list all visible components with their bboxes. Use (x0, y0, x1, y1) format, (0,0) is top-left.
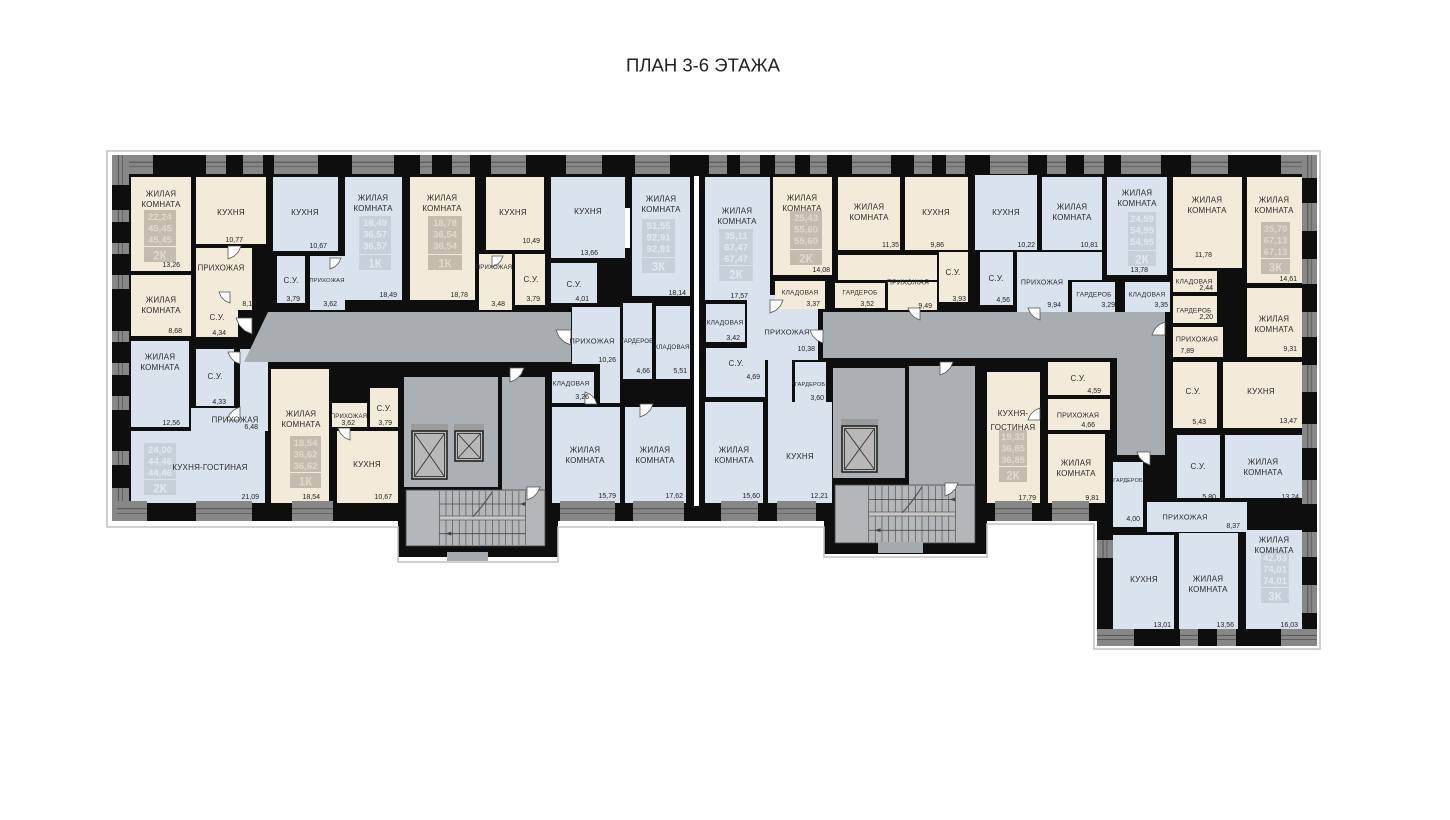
svg-text:13,01: 13,01 (1153, 622, 1171, 629)
svg-text:КОМНАТА: КОМНАТА (641, 205, 681, 214)
svg-text:67,13: 67,13 (1264, 235, 1288, 246)
svg-text:1К: 1К (438, 259, 452, 271)
svg-text:36,57: 36,57 (363, 241, 387, 252)
svg-text:36,85: 36,85 (1001, 443, 1025, 454)
svg-text:17,57: 17,57 (730, 293, 748, 300)
svg-text:36,62: 36,62 (294, 461, 318, 472)
svg-text:21,09: 21,09 (241, 494, 259, 501)
svg-text:51,55: 51,55 (647, 221, 671, 232)
svg-text:С.У.: С.У. (207, 372, 222, 381)
svg-text:18,78: 18,78 (450, 292, 468, 299)
svg-text:9,49: 9,49 (918, 303, 932, 310)
svg-text:13,26: 13,26 (162, 262, 180, 269)
svg-text:67,13: 67,13 (1264, 247, 1288, 258)
svg-text:КОМНАТА: КОМНАТА (353, 204, 393, 213)
svg-text:КОМНАТА: КОМНАТА (1187, 206, 1227, 215)
svg-text:55,60: 55,60 (794, 236, 818, 247)
svg-text:15,60: 15,60 (742, 493, 760, 500)
svg-text:3К: 3К (1269, 263, 1283, 275)
svg-text:2К: 2К (153, 251, 167, 263)
svg-text:КУХНЯ-: КУХНЯ- (998, 409, 1029, 418)
svg-text:ЖИЛАЯ: ЖИЛАЯ (1259, 196, 1290, 205)
svg-text:36,85: 36,85 (1001, 455, 1025, 466)
svg-text:КОМНАТА: КОМНАТА (422, 204, 462, 213)
svg-text:ЖИЛАЯ: ЖИЛАЯ (146, 296, 177, 305)
svg-text:КОМНАТА: КОМНАТА (565, 456, 605, 465)
svg-text:ЖИЛАЯ: ЖИЛАЯ (286, 410, 317, 419)
svg-text:3,52: 3,52 (860, 301, 874, 308)
svg-text:ЖИЛАЯ: ЖИЛАЯ (146, 190, 177, 199)
svg-text:ПРИХОЖАЯ: ПРИХОЖАЯ (1021, 279, 1063, 286)
svg-text:ПРИХОЖАЯ: ПРИХОЖАЯ (1176, 336, 1218, 343)
svg-text:ГОСТИНАЯ: ГОСТИНАЯ (991, 423, 1036, 432)
svg-text:С.У.: С.У. (523, 275, 538, 284)
svg-text:2К: 2К (1006, 471, 1020, 483)
svg-text:10,49: 10,49 (522, 238, 540, 245)
svg-text:3,79: 3,79 (378, 420, 392, 427)
svg-text:25,43: 25,43 (794, 213, 818, 224)
svg-text:КОМНАТА: КОМНАТА (140, 363, 180, 372)
svg-text:36,62: 36,62 (294, 449, 318, 460)
svg-text:С.У.: С.У. (283, 276, 298, 285)
svg-text:ЖИЛАЯ: ЖИЛАЯ (787, 194, 818, 203)
svg-text:4,01: 4,01 (575, 296, 589, 303)
svg-text:22,24: 22,24 (148, 212, 172, 223)
svg-text:С.У.: С.У. (209, 313, 224, 322)
svg-text:ЖИЛАЯ: ЖИЛАЯ (1248, 458, 1279, 467)
svg-text:13,47: 13,47 (1279, 418, 1297, 425)
svg-text:КУХНЯ: КУХНЯ (992, 208, 1020, 217)
svg-text:ЖИЛАЯ: ЖИЛАЯ (358, 194, 389, 203)
svg-text:10,26: 10,26 (598, 357, 616, 364)
svg-text:КОМНАТА: КОМНАТА (1254, 546, 1294, 555)
svg-text:12,21: 12,21 (810, 493, 828, 500)
svg-text:14,61: 14,61 (1279, 276, 1297, 283)
svg-text:КУХНЯ: КУХНЯ (574, 207, 602, 216)
svg-text:3,79: 3,79 (526, 296, 540, 303)
svg-text:4,33: 4,33 (212, 399, 226, 406)
svg-text:КЛАДОВАЯ: КЛАДОВАЯ (553, 380, 590, 387)
svg-text:9,81: 9,81 (1085, 495, 1099, 502)
svg-text:6,48: 6,48 (244, 424, 258, 431)
svg-text:9,86: 9,86 (930, 242, 944, 249)
svg-text:44,46: 44,46 (148, 468, 172, 479)
svg-text:4,69: 4,69 (746, 374, 760, 381)
svg-text:24,00: 24,00 (148, 445, 172, 456)
svg-text:16,03: 16,03 (1280, 622, 1298, 629)
svg-text:ЖИЛАЯ: ЖИЛАЯ (1259, 536, 1290, 545)
svg-text:КОМНАТА: КОМНАТА (717, 217, 757, 226)
svg-text:24,59: 24,59 (1130, 214, 1154, 225)
svg-text:2К: 2К (1135, 255, 1149, 267)
svg-text:ПРИХОЖАЯ: ПРИХОЖАЯ (1057, 412, 1099, 419)
svg-text:7,89: 7,89 (1180, 348, 1194, 355)
svg-text:ЖИЛАЯ: ЖИЛАЯ (854, 203, 885, 212)
svg-text:10,38: 10,38 (797, 346, 815, 353)
svg-text:36,54: 36,54 (433, 241, 457, 252)
svg-text:2,20: 2,20 (1199, 314, 1213, 321)
svg-text:18,14: 18,14 (668, 290, 686, 297)
svg-text:3,35: 3,35 (1154, 302, 1168, 309)
svg-text:КОМНАТА: КОМНАТА (1052, 213, 1092, 222)
svg-text:КОМНАТА: КОМНАТА (1117, 199, 1157, 208)
svg-text:36,57: 36,57 (363, 229, 387, 240)
svg-text:3,62: 3,62 (323, 301, 337, 308)
svg-text:КЛАДОВАЯ: КЛАДОВАЯ (654, 344, 689, 351)
svg-text:4,66: 4,66 (636, 368, 650, 375)
svg-text:11,35: 11,35 (882, 242, 899, 249)
svg-text:13,66: 13,66 (580, 250, 598, 257)
svg-text:КУХНЯ: КУХНЯ (291, 208, 319, 217)
svg-text:12,56: 12,56 (162, 420, 180, 427)
svg-text:2,44: 2,44 (1199, 285, 1213, 292)
svg-text:КОМНАТА: КОМНАТА (635, 456, 675, 465)
svg-text:ГАРДЕРОБ: ГАРДЕРОБ (1076, 291, 1111, 298)
svg-text:ПРИХОЖАЯ: ПРИХОЖАЯ (764, 328, 809, 337)
svg-text:ГАРДЕРОБ: ГАРДЕРОБ (842, 289, 877, 296)
svg-text:ЖИЛАЯ: ЖИЛАЯ (646, 195, 677, 204)
svg-text:ГАРДЕРОБ: ГАРДЕРОБ (795, 382, 826, 388)
svg-text:45,45: 45,45 (148, 223, 172, 234)
svg-text:КОМНАТА: КОМНАТА (141, 200, 181, 209)
svg-text:4,66: 4,66 (1081, 422, 1095, 429)
svg-text:КУХНЯ: КУХНЯ (217, 208, 245, 217)
svg-text:ЖИЛАЯ: ЖИЛАЯ (640, 446, 671, 455)
svg-text:3К: 3К (1268, 592, 1282, 604)
svg-text:С.У.: С.У. (728, 359, 743, 368)
svg-text:18,78: 18,78 (433, 218, 457, 229)
svg-text:3,42: 3,42 (726, 335, 740, 342)
svg-text:8,10: 8,10 (242, 301, 256, 308)
svg-text:ПРИХОЖАЯ: ПРИХОЖАЯ (198, 264, 245, 273)
svg-text:ЖИЛАЯ: ЖИЛАЯ (719, 446, 750, 455)
svg-text:1К: 1К (368, 259, 382, 271)
svg-text:ЖИЛАЯ: ЖИЛАЯ (1192, 196, 1223, 205)
svg-text:10,81: 10,81 (1080, 242, 1098, 249)
svg-text:13,56: 13,56 (1216, 622, 1234, 629)
svg-text:35,70: 35,70 (1264, 224, 1288, 235)
svg-text:17,79: 17,79 (1018, 495, 1036, 502)
svg-text:ЖИЛАЯ: ЖИЛАЯ (570, 446, 601, 455)
svg-text:ЖИЛАЯ: ЖИЛАЯ (1061, 459, 1092, 468)
svg-text:КОМНАТА: КОМНАТА (714, 456, 754, 465)
svg-text:ПРИХОЖАЯ: ПРИХОЖАЯ (569, 337, 614, 346)
svg-text:ГАРДЕРОБ: ГАРДЕРОБ (1113, 478, 1143, 484)
svg-text:9,94: 9,94 (1047, 302, 1061, 309)
svg-text:18,49: 18,49 (379, 292, 397, 299)
svg-text:67,47: 67,47 (724, 254, 748, 265)
svg-text:КУХНЯ-ГОСТИНАЯ: КУХНЯ-ГОСТИНАЯ (172, 463, 247, 472)
svg-text:8,37: 8,37 (1226, 523, 1240, 530)
svg-text:2К: 2К (153, 484, 167, 496)
svg-text:ЖИЛАЯ: ЖИЛАЯ (1259, 315, 1290, 324)
svg-text:54,95: 54,95 (1130, 237, 1154, 248)
svg-text:КОМНАТА: КОМНАТА (1254, 325, 1294, 334)
svg-text:4,59: 4,59 (1087, 388, 1101, 395)
svg-text:35,11: 35,11 (724, 231, 748, 242)
svg-text:4,56: 4,56 (996, 297, 1010, 304)
svg-text:КУХНЯ: КУХНЯ (1130, 575, 1158, 584)
svg-text:15,79: 15,79 (598, 493, 616, 500)
svg-text:18,54: 18,54 (294, 438, 318, 449)
svg-text:11,78: 11,78 (1195, 252, 1212, 259)
svg-text:5,80: 5,80 (1202, 494, 1216, 501)
svg-text:17,62: 17,62 (665, 493, 683, 500)
svg-text:ПРИХОЖАЯ: ПРИХОЖАЯ (309, 278, 344, 284)
svg-text:19,33: 19,33 (1001, 432, 1025, 443)
svg-text:5,43: 5,43 (1192, 419, 1206, 426)
svg-text:4,00: 4,00 (1126, 516, 1140, 523)
svg-text:КОМНАТА: КОМНАТА (1243, 468, 1283, 477)
svg-text:92,91: 92,91 (647, 232, 671, 243)
svg-text:74,01: 74,01 (1263, 564, 1287, 575)
svg-text:КУХНЯ: КУХНЯ (922, 208, 950, 217)
svg-text:8,68: 8,68 (168, 328, 182, 335)
svg-text:10,67: 10,67 (309, 243, 327, 250)
svg-text:36,54: 36,54 (433, 229, 457, 240)
svg-text:3,29: 3,29 (1101, 302, 1115, 309)
svg-text:1К: 1К (299, 477, 313, 489)
svg-text:ПРИХОЖАЯ: ПРИХОЖАЯ (1162, 513, 1207, 522)
svg-text:С.У.: С.У. (566, 280, 581, 289)
svg-text:2К: 2К (799, 254, 813, 266)
svg-text:ЖИЛАЯ: ЖИЛАЯ (1122, 189, 1153, 198)
svg-text:КЛАДОВАЯ: КЛАДОВАЯ (707, 319, 744, 326)
svg-text:ГАРДЕРОБ: ГАРДЕРОБ (621, 339, 654, 345)
svg-text:КУХНЯ: КУХНЯ (353, 460, 381, 469)
svg-text:3,60: 3,60 (810, 395, 824, 402)
svg-text:КУХНЯ: КУХНЯ (1247, 387, 1275, 396)
svg-text:ПЛАН 3-6 ЭТАЖА: ПЛАН 3-6 ЭТАЖА (626, 55, 781, 76)
svg-text:КОМНАТА: КОМНАТА (1254, 206, 1294, 215)
svg-text:КУХНЯ: КУХНЯ (786, 452, 814, 461)
svg-text:45,45: 45,45 (148, 235, 172, 246)
svg-text:18,54: 18,54 (302, 494, 320, 501)
svg-text:КЛАДОВАЯ: КЛАДОВАЯ (782, 289, 819, 296)
svg-text:3,93: 3,93 (952, 296, 966, 303)
svg-text:3,62: 3,62 (341, 420, 355, 427)
svg-text:14,08: 14,08 (812, 267, 830, 274)
svg-text:С.У.: С.У. (376, 404, 391, 413)
svg-text:С.У.: С.У. (1070, 374, 1085, 383)
svg-text:3,48: 3,48 (491, 301, 505, 308)
svg-text:КОМНАТА: КОМНАТА (1188, 585, 1228, 594)
svg-text:44,46: 44,46 (148, 456, 172, 467)
svg-text:74,01: 74,01 (1263, 576, 1287, 587)
svg-text:3,26: 3,26 (575, 394, 589, 401)
svg-text:С.У.: С.У. (945, 268, 960, 277)
svg-text:ЖИЛАЯ: ЖИЛАЯ (1057, 203, 1088, 212)
svg-text:54,95: 54,95 (1130, 225, 1154, 236)
svg-text:КУХНЯ: КУХНЯ (499, 208, 527, 217)
svg-text:10,77: 10,77 (225, 237, 243, 244)
svg-text:2К: 2К (729, 270, 743, 282)
svg-text:4,34: 4,34 (212, 330, 226, 337)
svg-text:КОМНАТА: КОМНАТА (1056, 469, 1096, 478)
svg-text:13,24: 13,24 (1281, 494, 1299, 501)
svg-text:ЖИЛАЯ: ЖИЛАЯ (722, 207, 753, 216)
svg-text:10,67: 10,67 (374, 494, 392, 501)
svg-text:3,79: 3,79 (286, 296, 300, 303)
svg-text:КОМНАТА: КОМНАТА (849, 213, 889, 222)
svg-text:С.У.: С.У. (988, 274, 1003, 283)
svg-text:КОМНАТА: КОМНАТА (782, 204, 822, 213)
svg-text:КЛАДОВАЯ: КЛАДОВАЯ (1129, 291, 1166, 298)
svg-text:13,78: 13,78 (1130, 267, 1148, 274)
svg-text:КОМНАТА: КОМНАТА (281, 420, 321, 429)
svg-text:55,60: 55,60 (794, 224, 818, 235)
svg-text:ЖИЛАЯ: ЖИЛАЯ (427, 194, 458, 203)
svg-text:92,91: 92,91 (647, 244, 671, 255)
svg-text:ПРИХОЖАЯ: ПРИХОЖАЯ (887, 279, 929, 286)
svg-text:КОМНАТА: КОМНАТА (141, 306, 181, 315)
svg-text:ЖИЛАЯ: ЖИЛАЯ (145, 353, 176, 362)
svg-text:18,49: 18,49 (363, 218, 387, 229)
svg-text:С.У.: С.У. (1190, 462, 1205, 471)
svg-text:ПРИХОЖАЯ: ПРИХОЖАЯ (476, 265, 512, 271)
svg-text:3К: 3К (652, 262, 666, 274)
svg-text:С.У.: С.У. (1185, 387, 1200, 396)
svg-text:5,51: 5,51 (673, 368, 687, 375)
svg-text:10,22: 10,22 (1017, 242, 1035, 249)
svg-text:3,37: 3,37 (806, 301, 820, 308)
svg-text:ЖИЛАЯ: ЖИЛАЯ (1193, 575, 1224, 584)
svg-text:67,47: 67,47 (724, 242, 748, 253)
svg-text:9,31: 9,31 (1283, 346, 1297, 353)
